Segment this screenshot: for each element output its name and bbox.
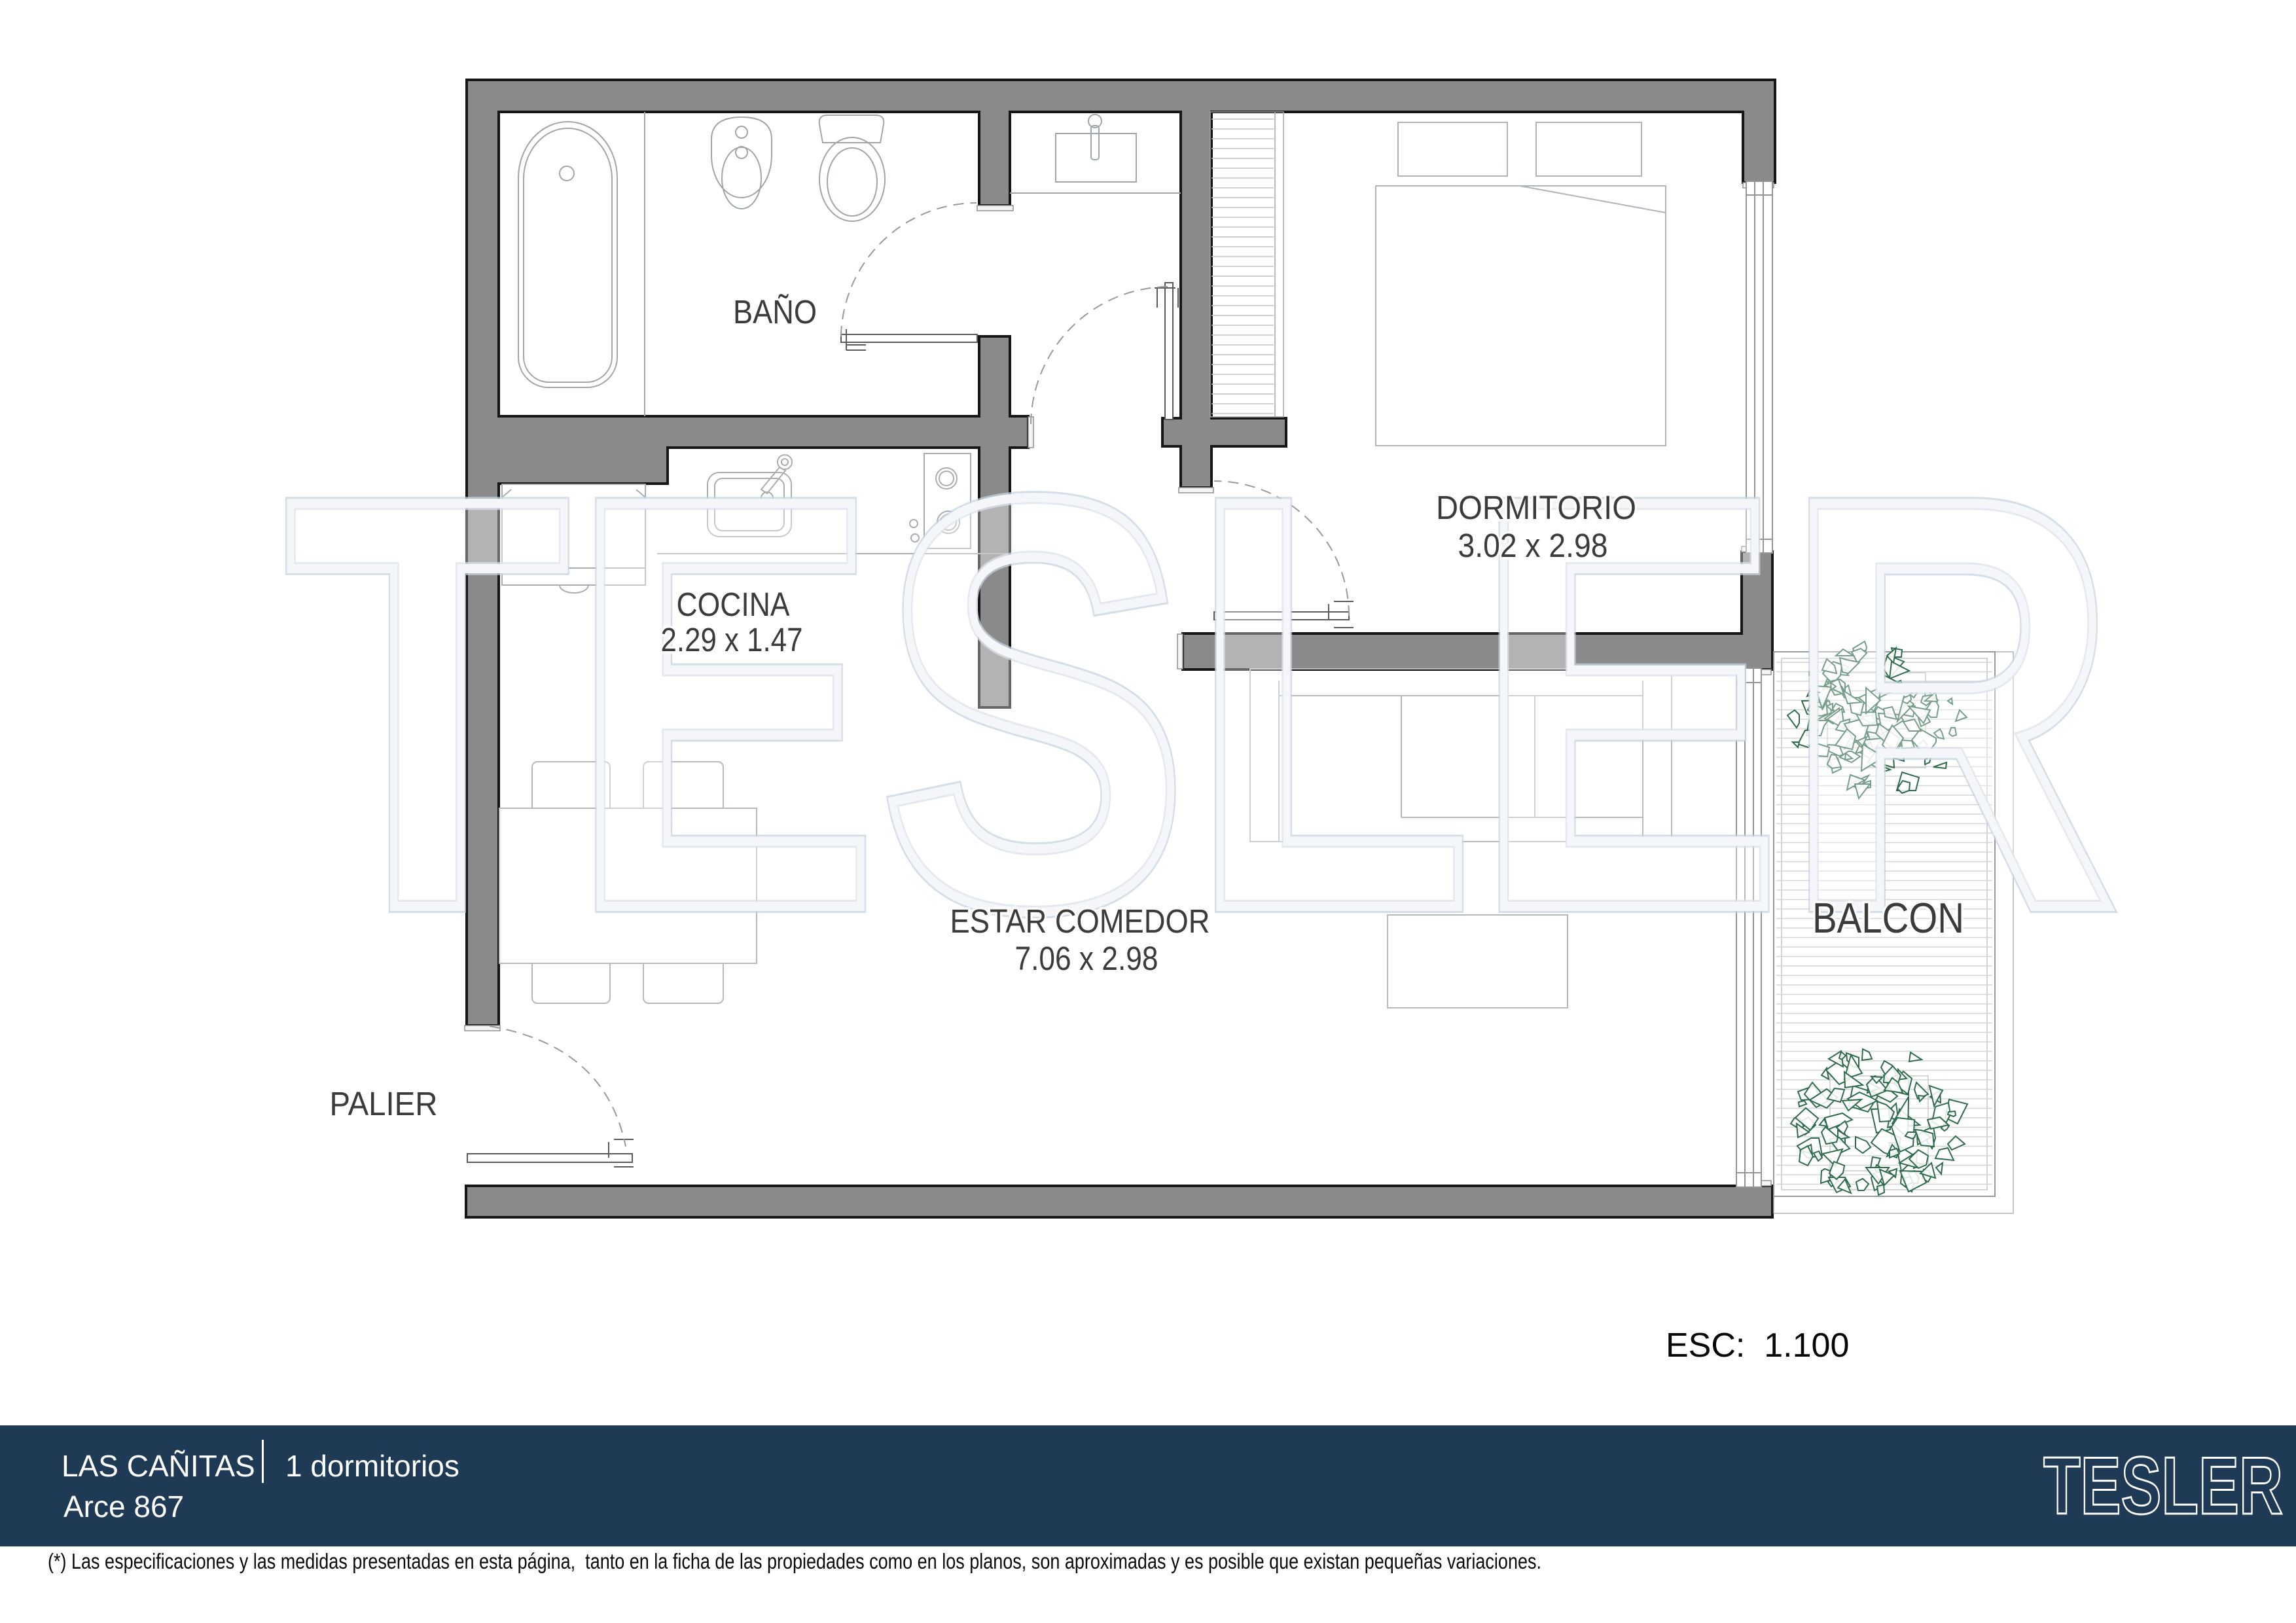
svg-text:Arce 867: Arce 867 (63, 1489, 184, 1524)
svg-text:PALIER: PALIER (330, 1085, 438, 1122)
svg-text:COCINA: COCINA (677, 586, 790, 623)
svg-text:LAS CAÑITAS: LAS CAÑITAS (62, 1449, 255, 1483)
svg-text:ESTAR COMEDOR: ESTAR COMEDOR (950, 902, 1210, 940)
svg-text:DORMITORIO: DORMITORIO (1436, 489, 1636, 526)
svg-text:BAÑO: BAÑO (733, 293, 817, 330)
svg-text:3.02 x 2.98: 3.02 x 2.98 (1458, 527, 1608, 564)
svg-text:TESLER: TESLER (2043, 1441, 2283, 1531)
svg-text:ESC: 1.100: ESC: 1.100 (1666, 1327, 1849, 1364)
svg-text:(*) Las especificaciones y las: (*) Las especificaciones y las medidas p… (48, 1549, 1541, 1573)
svg-text:1 dormitorios: 1 dormitorios (285, 1449, 459, 1483)
svg-text:7.06 x 2.98: 7.06 x 2.98 (1015, 940, 1158, 977)
svg-text:2.29 x 1.47: 2.29 x 1.47 (661, 621, 803, 658)
svg-text:BALCON: BALCON (1812, 894, 1964, 942)
